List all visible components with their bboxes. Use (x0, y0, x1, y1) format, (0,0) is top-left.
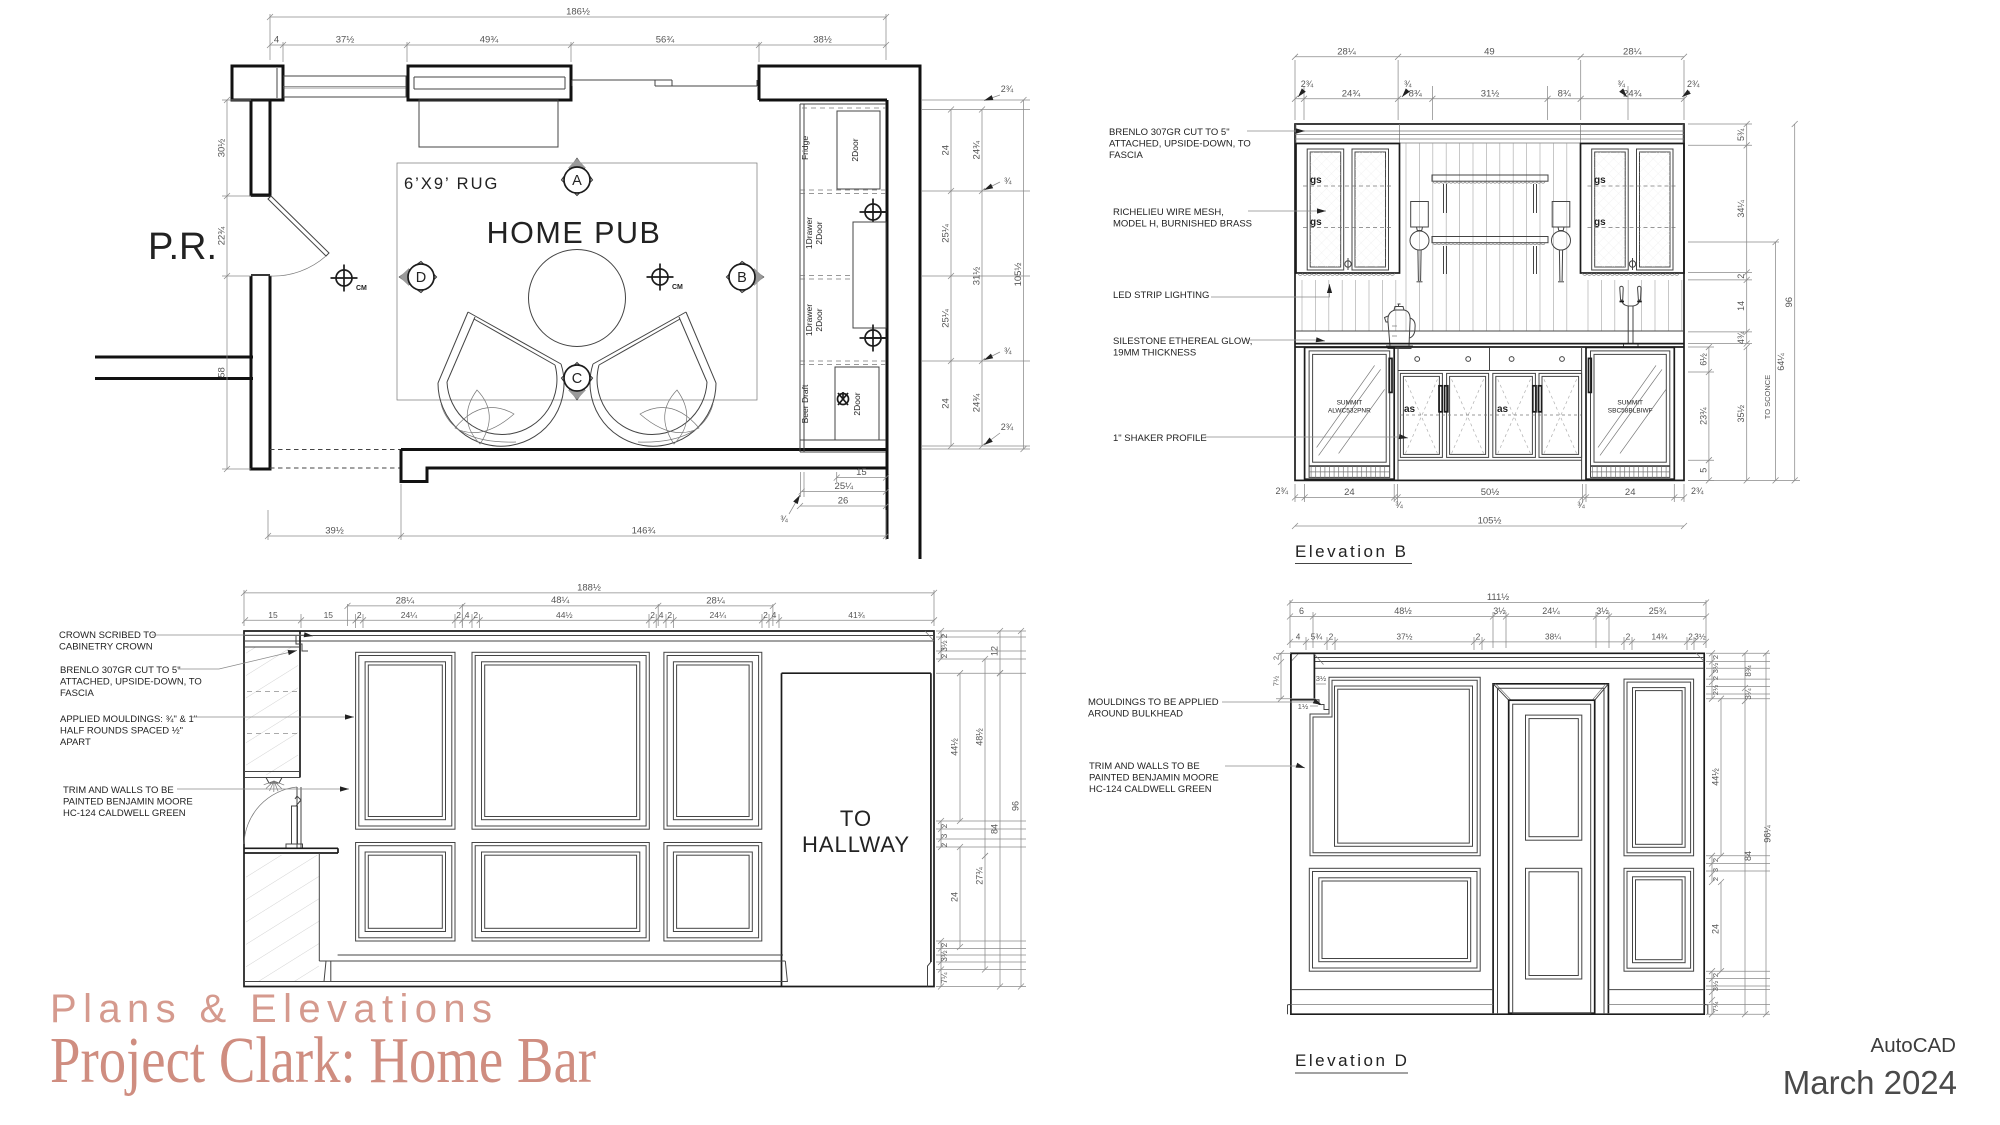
svg-text:3½: 3½ (1596, 606, 1609, 616)
svg-text:24¾: 24¾ (972, 140, 983, 160)
svg-text:2: 2 (1688, 632, 1693, 641)
svg-text:7¼: 7¼ (940, 972, 949, 983)
svg-text:D: D (416, 270, 426, 286)
svg-text:48¼: 48¼ (551, 595, 571, 606)
svg-text:HC-124 CALDWELL GREEN: HC-124 CALDWELL GREEN (63, 808, 186, 819)
svg-text:ATTACHED, UPSIDE-DOWN, TO: ATTACHED, UPSIDE-DOWN, TO (60, 677, 202, 688)
svg-text:24: 24 (950, 892, 960, 902)
svg-text:3½: 3½ (1493, 606, 1506, 616)
svg-text:48½: 48½ (1394, 606, 1412, 616)
svg-text:2: 2 (456, 610, 461, 620)
svg-text:2: 2 (1711, 655, 1720, 659)
svg-text:44½: 44½ (1711, 768, 1721, 786)
svg-text:14¾: 14¾ (1652, 632, 1668, 641)
svg-text:Elevation B: Elevation B (1295, 542, 1409, 561)
svg-text:2: 2 (667, 610, 672, 620)
svg-text:48½: 48½ (975, 728, 985, 746)
svg-text:24: 24 (1625, 487, 1636, 498)
svg-text:BRENLO 307GR CUT TO 5": BRENLO 307GR CUT TO 5" (1109, 127, 1230, 138)
svg-text:2: 2 (473, 610, 478, 620)
svg-text:3½: 3½ (940, 950, 949, 961)
svg-text:44½: 44½ (950, 738, 960, 756)
svg-text:3½: 3½ (1694, 632, 1706, 641)
svg-text:2: 2 (357, 610, 362, 620)
svg-text:12: 12 (990, 646, 1000, 656)
svg-text:3½: 3½ (1316, 674, 1327, 683)
svg-text:27¾: 27¾ (975, 867, 985, 885)
svg-text:4: 4 (772, 610, 777, 620)
svg-text:3½: 3½ (1711, 980, 1720, 991)
svg-text:28¼: 28¼ (396, 595, 416, 606)
svg-text:SILESTONE ETHEREAL GLOW,: SILESTONE ETHEREAL GLOW, (1113, 336, 1252, 347)
svg-text:146¾: 146¾ (632, 526, 657, 537)
svg-text:SBC58BLBIWF: SBC58BLBIWF (1608, 407, 1653, 414)
svg-text:as: as (1404, 404, 1416, 415)
svg-text:5¾: 5¾ (1736, 128, 1746, 141)
svg-text:March 2024: March 2024 (1783, 1064, 1957, 1101)
svg-text:gs: gs (1594, 175, 1606, 186)
svg-text:2¾: 2¾ (1001, 422, 1014, 432)
svg-text:2¾: 2¾ (1001, 84, 1014, 94)
svg-text:25¾: 25¾ (1649, 606, 1667, 616)
svg-text:HOME PUB: HOME PUB (487, 216, 662, 250)
svg-text:SUMMIT: SUMMIT (1337, 399, 1363, 406)
svg-text:24: 24 (1711, 924, 1721, 934)
svg-text:Fridge: Fridge (800, 136, 810, 160)
svg-text:PAINTED BENJAMIN MOORE: PAINTED BENJAMIN MOORE (63, 797, 193, 808)
svg-text:ALWC532PNR: ALWC532PNR (1328, 407, 1371, 414)
svg-text:PAINTED BENJAMIN MOORE: PAINTED BENJAMIN MOORE (1089, 773, 1219, 784)
svg-text:30½: 30½ (217, 139, 228, 158)
svg-text:gs: gs (1310, 217, 1322, 228)
svg-text:MOULDINGS TO BE APPLIED: MOULDINGS TO BE APPLIED (1088, 697, 1219, 708)
svg-text:MODEL H, BURNISHED BRASS: MODEL H, BURNISHED BRASS (1113, 219, 1252, 230)
svg-text:28¼: 28¼ (1337, 46, 1357, 57)
svg-text:2¾: 2¾ (1275, 486, 1288, 496)
svg-text:7½: 7½ (1272, 675, 1281, 686)
svg-text:84: 84 (1743, 851, 1753, 861)
svg-text:BRENLO 307GR CUT TO 5": BRENLO 307GR CUT TO 5" (60, 665, 181, 676)
svg-text:37½: 37½ (336, 35, 355, 46)
svg-text:5¾: 5¾ (1311, 632, 1323, 641)
svg-text:2: 2 (1711, 676, 1720, 680)
svg-text:111½: 111½ (1487, 592, 1509, 603)
svg-text:SUMMIT: SUMMIT (1617, 399, 1643, 406)
svg-text:38½: 38½ (813, 35, 832, 46)
svg-text:¾: ¾ (1577, 500, 1585, 510)
svg-text:6’X9’ RUG: 6’X9’ RUG (404, 175, 499, 193)
svg-text:56¾: 56¾ (656, 35, 676, 46)
svg-text:39½: 39½ (325, 526, 344, 537)
svg-text:2: 2 (1711, 973, 1720, 977)
svg-text:1Drawer: 1Drawer (804, 217, 814, 249)
svg-text:84: 84 (990, 824, 1000, 834)
svg-text:24¾: 24¾ (1623, 88, 1643, 99)
svg-text:34¼: 34¼ (1736, 200, 1746, 218)
svg-text:24¼: 24¼ (401, 610, 418, 620)
svg-text:CABINETRY CROWN: CABINETRY CROWN (59, 642, 153, 653)
svg-text:19MM THICKNESS: 19MM THICKNESS (1113, 348, 1196, 359)
svg-text:HALF ROUNDS SPACED ½": HALF ROUNDS SPACED ½" (60, 726, 183, 737)
svg-text:188½: 188½ (577, 582, 601, 593)
svg-text:RICHELIEU WIRE MESH,: RICHELIEU WIRE MESH, (1113, 207, 1224, 218)
svg-text:96: 96 (1784, 297, 1795, 308)
svg-text:4: 4 (659, 610, 664, 620)
svg-text:1" SHAKER PROFILE: 1" SHAKER PROFILE (1113, 433, 1207, 444)
svg-text:24: 24 (941, 145, 952, 156)
svg-text:50½: 50½ (1481, 487, 1500, 498)
svg-text:1½: 1½ (1298, 702, 1309, 711)
svg-text:¾: ¾ (1004, 346, 1012, 356)
svg-text:APART: APART (60, 737, 91, 748)
svg-text:96: 96 (1011, 801, 1021, 811)
svg-text:CROWN SCRIBED TO: CROWN SCRIBED TO (59, 630, 156, 641)
svg-text:96¼: 96¼ (1763, 825, 1773, 843)
svg-text:2: 2 (1736, 274, 1746, 279)
svg-text:3½: 3½ (1711, 662, 1720, 673)
svg-text:28¼: 28¼ (1623, 46, 1643, 57)
svg-text:¾: ¾ (1395, 500, 1403, 510)
svg-text:Beer Draft: Beer Draft (800, 384, 810, 423)
svg-text:3½: 3½ (940, 640, 949, 651)
svg-text:8¾: 8¾ (1409, 88, 1423, 99)
svg-text:35½: 35½ (1736, 404, 1746, 422)
svg-text:as: as (1497, 404, 1509, 415)
svg-text:24¼: 24¼ (710, 610, 727, 620)
svg-text:FASCIA: FASCIA (1109, 150, 1143, 161)
svg-text:2Door: 2Door (814, 308, 824, 331)
svg-text:2½: 2½ (1711, 684, 1720, 695)
svg-text:3¼: 3¼ (1744, 688, 1753, 699)
svg-text:CM: CM (356, 285, 367, 292)
svg-text:24¾: 24¾ (1342, 88, 1362, 99)
svg-text:2: 2 (1272, 656, 1281, 660)
svg-text:¾: ¾ (780, 514, 788, 524)
svg-text:1Drawer: 1Drawer (804, 304, 814, 336)
svg-text:38¼: 38¼ (1545, 632, 1561, 641)
svg-text:2: 2 (1626, 632, 1631, 641)
svg-text:P.R.: P.R. (148, 226, 217, 268)
svg-text:44½: 44½ (556, 610, 573, 620)
svg-text:14: 14 (1736, 301, 1746, 311)
svg-text:3: 3 (1711, 868, 1720, 872)
svg-text:25¼: 25¼ (941, 308, 952, 328)
svg-text:2: 2 (650, 610, 655, 620)
svg-text:24: 24 (1344, 487, 1355, 498)
svg-text:15: 15 (856, 467, 867, 478)
svg-text:5: 5 (1698, 468, 1708, 473)
svg-text:TRIM AND WALLS TO BE: TRIM AND WALLS TO BE (63, 785, 174, 796)
svg-text:gs: gs (1594, 217, 1606, 228)
svg-text:8¾: 8¾ (1744, 665, 1753, 676)
svg-text:8¾: 8¾ (1558, 88, 1572, 99)
svg-text:6½: 6½ (1698, 353, 1708, 366)
svg-text:6: 6 (1299, 606, 1304, 616)
svg-text:28¼: 28¼ (706, 595, 726, 606)
svg-text:24¾: 24¾ (972, 393, 983, 413)
svg-text:2Door: 2Door (852, 392, 862, 415)
svg-text:2: 2 (1476, 632, 1481, 641)
svg-text:¾: ¾ (1617, 79, 1625, 89)
svg-text:¾: ¾ (1404, 79, 1412, 89)
svg-text:AutoCAD: AutoCAD (1871, 1034, 1956, 1057)
svg-text:49¾: 49¾ (480, 35, 500, 46)
svg-text:LED STRIP LIGHTING: LED STRIP LIGHTING (1113, 290, 1209, 301)
svg-text:Elevation D: Elevation D (1295, 1051, 1409, 1070)
svg-text:186½: 186½ (566, 7, 590, 18)
svg-text:26: 26 (838, 496, 849, 507)
svg-text:HALLWAY: HALLWAY (802, 832, 910, 857)
svg-text:4: 4 (1296, 632, 1301, 641)
svg-text:2¾: 2¾ (1301, 79, 1314, 89)
svg-text:24: 24 (941, 398, 952, 409)
svg-text:AROUND BULKHEAD: AROUND BULKHEAD (1088, 709, 1183, 720)
svg-text:2Door: 2Door (850, 138, 860, 161)
svg-text:64¼: 64¼ (1776, 353, 1786, 371)
svg-text:TO SCONCE: TO SCONCE (1763, 375, 1772, 419)
svg-text:2: 2 (1711, 877, 1720, 881)
svg-text:37½: 37½ (1397, 632, 1413, 641)
svg-text:FASCIA: FASCIA (60, 688, 94, 699)
svg-text:58: 58 (217, 367, 228, 378)
svg-text:2¾: 2¾ (1687, 79, 1700, 89)
svg-text:2: 2 (940, 633, 949, 638)
svg-text:¾: ¾ (1004, 176, 1012, 186)
svg-text:TRIM AND WALLS TO BE: TRIM AND WALLS TO BE (1089, 761, 1200, 772)
svg-text:15: 15 (268, 610, 278, 620)
svg-text:25¼: 25¼ (941, 223, 952, 243)
svg-text:31½: 31½ (972, 267, 983, 286)
svg-text:25¼: 25¼ (835, 481, 855, 492)
svg-text:B: B (737, 270, 747, 286)
svg-text:Project Clark: Home Bar: Project Clark: Home Bar (50, 1024, 596, 1097)
svg-text:2: 2 (1329, 632, 1334, 641)
svg-text:4: 4 (274, 35, 279, 46)
svg-text:105½: 105½ (1478, 516, 1502, 527)
svg-text:HC-124 CALDWELL GREEN: HC-124 CALDWELL GREEN (1089, 784, 1212, 795)
svg-text:31½: 31½ (1481, 88, 1500, 99)
svg-text:4: 4 (465, 610, 470, 620)
svg-text:49: 49 (1484, 46, 1495, 57)
svg-text:15: 15 (324, 610, 334, 620)
svg-text:2Door: 2Door (814, 221, 824, 244)
svg-text:23¾: 23¾ (1698, 407, 1708, 425)
svg-text:2: 2 (763, 610, 768, 620)
svg-text:4¾: 4¾ (1736, 331, 1746, 344)
svg-text:41¾: 41¾ (848, 610, 865, 620)
svg-text:2¾: 2¾ (1691, 486, 1704, 496)
svg-text:APPLIED MOULDINGS: ¾" & 1": APPLIED MOULDINGS: ¾" & 1" (60, 714, 197, 725)
svg-text:7¼: 7¼ (1711, 1001, 1720, 1012)
svg-text:C: C (572, 371, 582, 387)
svg-text:A: A (572, 173, 582, 189)
svg-text:ATTACHED, UPSIDE-DOWN, TO: ATTACHED, UPSIDE-DOWN, TO (1109, 139, 1251, 150)
svg-text:22¾: 22¾ (217, 226, 228, 246)
svg-text:2: 2 (940, 653, 949, 658)
svg-text:CM: CM (672, 284, 683, 291)
svg-text:105½: 105½ (1013, 263, 1024, 287)
svg-text:TO: TO (840, 806, 872, 831)
svg-text:24¼: 24¼ (1542, 606, 1560, 616)
svg-text:gs: gs (1310, 175, 1322, 186)
svg-text:2: 2 (1711, 858, 1720, 862)
svg-text:2: 2 (940, 942, 949, 947)
